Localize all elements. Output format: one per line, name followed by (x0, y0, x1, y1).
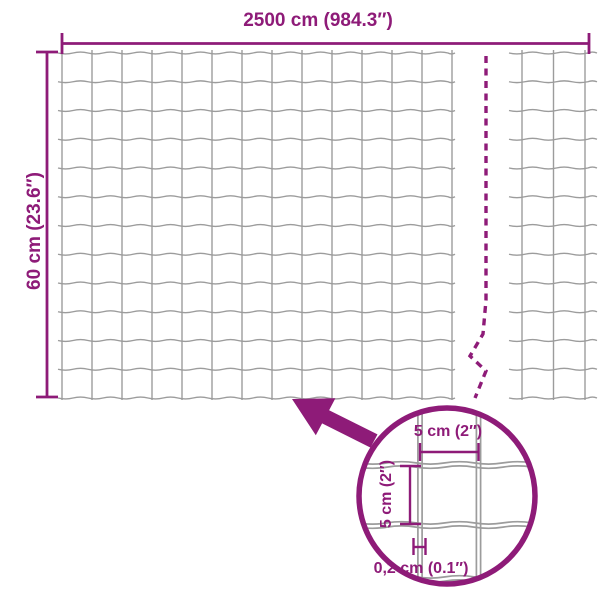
width-dimension: 2500 cm (984.3″) (62, 10, 589, 54)
detail-callout: 5 cm (2″) 5 cm (2″) 0,2 cm (0.1″) (358, 404, 540, 588)
horizontal-wire (58, 282, 455, 284)
horizontal-wire (58, 368, 455, 370)
horizontal-wire (58, 52, 455, 54)
horizontal-wire (58, 397, 455, 399)
width-dimension-label: 2500 cm (984.3″) (243, 10, 393, 31)
zoom-arrow-icon (292, 398, 378, 447)
detail-cell-width-label: 5 cm (2″) (414, 423, 482, 440)
height-dimension: 60 cm (23.6″) (24, 52, 58, 397)
detail-cell-height-label: 5 cm (2″) (378, 460, 395, 528)
horizontal-wire (58, 225, 455, 227)
horizontal-wire (58, 138, 455, 140)
horizontal-wire (58, 340, 455, 342)
horizontal-wire (58, 81, 455, 83)
diagram-canvas: 2500 cm (984.3″) 60 cm (23.6″) 5 cm (2″) (0, 0, 600, 600)
detail-thickness-label: 0,2 cm (0.1″) (374, 560, 469, 577)
fence-mesh-main (58, 50, 455, 400)
detail-cell-width-dimension: 5 cm (2″) (414, 423, 482, 461)
fence-dimension-diagram: 2500 cm (984.3″) 60 cm (23.6″) 5 cm (2″) (0, 0, 600, 600)
horizontal-wire (58, 167, 455, 169)
fence-mesh-continuation (509, 50, 597, 400)
horizontal-wire (58, 196, 455, 198)
horizontal-wire (58, 110, 455, 112)
height-dimension-label: 60 cm (23.6″) (24, 172, 45, 290)
horizontal-wire (58, 311, 455, 313)
detail-cell-height-dimension: 5 cm (2″) (378, 460, 421, 528)
horizontal-wire (58, 253, 455, 255)
break-line (470, 56, 486, 398)
detail-wire-thickness-marker (414, 538, 426, 555)
